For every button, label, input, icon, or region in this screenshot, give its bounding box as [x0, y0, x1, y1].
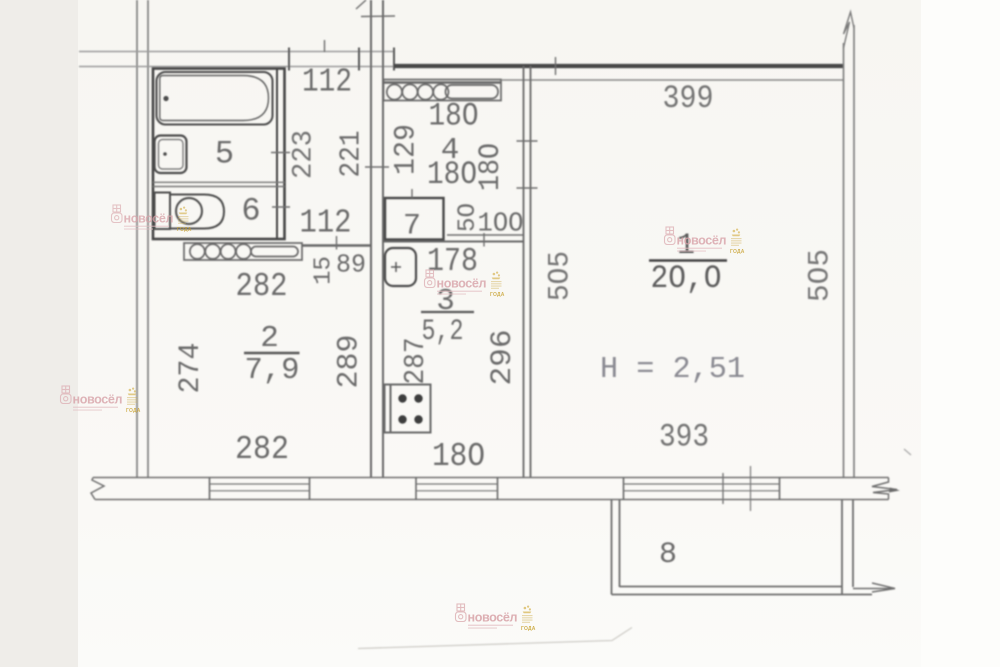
svg-text:399: 399 — [663, 80, 714, 117]
svg-text:112: 112 — [300, 205, 352, 242]
svg-text:274: 274 — [174, 343, 208, 394]
svg-text:18O: 18O — [427, 156, 477, 193]
svg-text:2: 2 — [260, 321, 279, 356]
svg-text:296: 296 — [486, 330, 520, 386]
svg-text:129: 129 — [390, 124, 424, 175]
svg-text:5O5: 5O5 — [804, 249, 838, 302]
svg-text:Н = 2,51: Н = 2,51 — [600, 352, 745, 387]
svg-text:89: 89 — [336, 250, 366, 280]
svg-text:289: 289 — [333, 335, 367, 389]
svg-text:178: 178 — [427, 243, 478, 280]
svg-text:1OO: 1OO — [478, 210, 524, 240]
svg-text:7: 7 — [403, 210, 421, 244]
svg-text:2O,O: 2O,O — [651, 260, 722, 297]
svg-text:5O5: 5O5 — [544, 251, 578, 301]
svg-text:18O: 18O — [429, 98, 479, 135]
svg-text:5: 5 — [215, 136, 234, 173]
svg-text:15: 15 — [310, 256, 337, 285]
svg-text:112: 112 — [302, 64, 352, 101]
svg-text:223: 223 — [288, 130, 319, 179]
svg-text:282: 282 — [236, 268, 288, 305]
svg-text:7,9: 7,9 — [245, 353, 300, 388]
svg-text:18O: 18O — [474, 143, 508, 191]
svg-text:282: 282 — [235, 431, 289, 468]
svg-text:6: 6 — [241, 193, 260, 230]
svg-text:287: 287 — [399, 338, 432, 385]
svg-text:221: 221 — [335, 131, 368, 178]
svg-text:8: 8 — [659, 538, 677, 572]
svg-text:18O: 18O — [432, 438, 485, 475]
svg-text:393: 393 — [659, 419, 709, 456]
